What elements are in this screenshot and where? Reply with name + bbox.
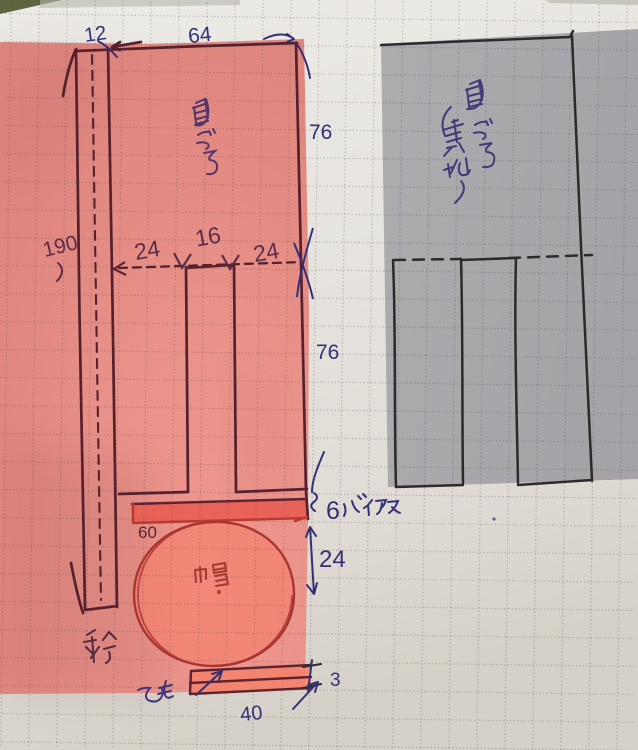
svg-text:76: 76 (309, 121, 332, 144)
svg-text:16: 16 (193, 221, 223, 251)
svg-text:24: 24 (132, 235, 162, 265)
svg-text:76: 76 (316, 341, 339, 364)
svg-text:12: 12 (83, 22, 108, 47)
svg-text:3: 3 (330, 670, 341, 691)
svg-text:64: 64 (187, 23, 213, 48)
svg-text:6: 6 (326, 497, 340, 525)
svg-text:60: 60 (138, 523, 157, 542)
svg-text:24: 24 (319, 546, 346, 573)
svg-text:40: 40 (239, 702, 263, 726)
svg-text:24: 24 (251, 237, 281, 267)
